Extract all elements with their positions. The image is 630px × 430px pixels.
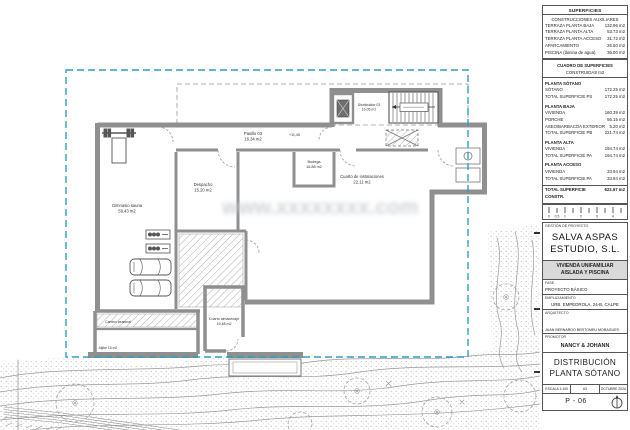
row-value: 5.20 m2 [609,124,625,131]
room-label-almacenaje: Cuarto almacenaje [209,317,239,321]
room-area-distribuidor: 16.05 m2 [362,108,377,112]
total-label: TOTAL SUPERFICIE CONSTR. [545,187,604,201]
built-table-title: CUADRO DE SUPERFICIES [543,60,627,69]
auxiliary-surfaces-table: SUPERFICIES CONSTRUCCIONES AUXILIARES TE… [542,5,628,59]
total-value: 622.67 m2 [604,187,625,201]
fase-box: FASE PROYECTO BÁSICO [542,280,628,295]
drawing-title-box: DISTRIBUCIÓN PLANTA SÓTANO [542,353,628,385]
staircase [389,92,438,123]
arquitecto-value: JUAN BERNARDO BERTOMEU MORAGUES [543,316,627,333]
drawing-title-line2: PLANTA SÓTANO [543,368,627,379]
room-area-gimnasio: 59.43 m2 [118,209,136,214]
management-box: GESTIÓN DE PROYECTO SALVA ASPAS ESTUDIO,… [542,222,628,261]
room-label-despacho: Despacho [194,182,214,187]
room-label-distribuidor: Distribuidor 03 [358,103,381,107]
row-value: 221.74 m2 [605,130,625,137]
row-label: ASEO/BARBACOA EXTERIOR [545,124,605,131]
table-row: VIVIENDA33.94 m2 [543,169,627,176]
fase-value: PROYECTO BÁSICO [543,286,627,294]
room-label-bodega: Bodega [307,160,321,164]
room-label-instalaciones: Cuarto de instalaciones [340,174,384,179]
table-row: VIVIENDA160.39 m2 [543,110,627,117]
bench-press [102,129,136,163]
scale-label: 4 [612,215,614,219]
row-value: 172.25 m2 [605,94,625,101]
row-label: TERRAZA PLANTA BAJA [545,23,594,30]
row-value: 172.25 m2 [605,87,625,94]
project-title-line1: VIVIENDA UNIFAMILIAR [543,263,627,270]
aux-table-title: SUPERFICIES [543,6,627,15]
section-planta-sotano: PLANTA SÓTANO SÓTANO172.25 m2 TOTAL SUPE… [543,81,627,101]
row-label: TERRAZA PLANTA ACCESO [545,36,601,43]
room-area-almacenaje: 19.48 m2 [217,322,232,326]
table-row: SÓTANO172.25 m2 [543,87,627,94]
studio-name-line1: SALVA ASPAS [543,232,627,244]
promotor-box: PROMOTOR NANCY & JOHANN [542,334,628,353]
section-planta-baja: PLANTA BAJA VIVIENDA160.39 m2 PORCHE56.1… [543,104,627,138]
row-label: TERRAZA PLANTA ALTA [545,29,593,36]
table-row: TOTAL SUPERFICIE PA194.74 m2 [543,153,627,160]
north-arrow-icon [609,394,625,410]
scale-label: 0 [548,215,550,219]
level-annotation: +11,45 [289,133,300,137]
car-2 [130,280,171,296]
row-label: VIVIENDA [545,146,565,153]
car-1 [130,259,171,275]
emplazamiento-value: URB. EMPEDROLA, 24-B, CALPE [543,301,627,309]
title-block-stack: GESTIÓN DE PROYECTO SALVA ASPAS ESTUDIO,… [542,222,628,411]
row-value: 56.15 m2 [607,117,625,124]
aux-table-subtitle: CONSTRUCCIONES AUXILIARES [543,15,627,23]
scale-label: 0,5 [555,215,560,219]
title-block-panel: SUPERFICIES CONSTRUCCIONES AUXILIARES TE… [542,5,628,411]
studio-name-line2: ESTUDIO, S.L. [543,244,627,256]
section-planta-alta: PLANTA ALTA VIVIENDA194.74 m2 TOTAL SUPE… [543,140,627,160]
sheet-number: P - 06 [543,398,609,405]
row-value: 194.74 m2 [605,146,625,153]
promotor-value: NANCY & JOHANN [543,340,627,352]
project-title-band: VIVIENDA UNIFAMILIAR AISLADA Y PISCINA [542,261,628,280]
table-row: TERRAZA PLANTA BAJA132.96 m2 [543,23,627,30]
row-label: SÓTANO [545,87,563,94]
built-table-subtitle: CONSTRUIDAS m2 [543,69,627,79]
row-label: VIVIENDA [545,169,565,176]
sheet-number-box: P - 06 [542,394,628,411]
row-value: 36.00 m2 [607,50,625,57]
room-label-aljibe: Aljibe 15 m2 [99,346,118,350]
floor-plan-drawing: Gimnasio sauna 59.43 m2 Despacho 15.20 m… [0,0,540,430]
gym-machines [146,230,170,253]
table-row: TOTAL SUPERFICIE PA33.94 m2 [543,176,627,183]
room-label-camino: Camino peatonal [105,320,131,324]
room-label-gimnasio: Gimnasio sauna [112,203,143,208]
meta-row: ESCALA 1:100 A3 OCTUBRE 2024 [542,385,628,394]
emplazamiento-box: EMPLAZAMIENTO URB. EMPEDROLA, 24-B, CALP… [542,295,628,310]
row-label: TOTAL SUPERFICIE PS [545,94,592,101]
elevator [333,94,353,123]
row-value: 33.94 m2 [607,176,625,183]
plan-sheet: Gimnasio sauna 59.43 m2 Despacho 15.20 m… [0,0,630,430]
total-row: TOTAL SUPERFICIE CONSTR. 622.67 m2 [543,185,627,203]
row-label: PISCINA (lámina de agua) [545,50,595,57]
void-crosshatch [386,130,418,146]
table-row: ASEO/BARBACOA EXTERIOR5.20 m2 [543,124,627,131]
section-planta-acceso: PLANTA ACCESO VIVIENDA33.94 m2 TOTAL SUP… [543,162,627,182]
ramp-hatch [179,234,243,307]
room-area-pasillo: 16.34 m2 [244,137,262,142]
table-row: TERRAZA PLANTA ALTA53.73 m2 [543,29,627,36]
scale-value: ESCALA 1:100 [543,385,571,393]
table-row: APARCAMIENTO26.50 m2 [543,43,627,50]
table-row: TERRAZA PLANTA ACCESO31.72 m2 [543,36,627,43]
room-area-instalaciones: 22.11 m2 [353,180,371,185]
row-label: VIVIENDA [545,110,565,117]
row-value: 33.94 m2 [607,169,625,176]
row-value: 160.39 m2 [605,110,625,117]
row-value: 31.72 m2 [607,36,625,43]
row-value: 194.74 m2 [605,153,625,160]
row-label: APARCAMIENTO [545,43,579,50]
graphic-scale-bar: 0 0,5 1 2 3 4 [542,204,628,220]
terrain [0,224,540,430]
scale-label: 2 [580,215,582,219]
table-row: PORCHE56.15 m2 [543,117,627,124]
scale-label: 3 [596,215,598,219]
row-label: TOTAL SUPERFICIE PA [545,153,592,160]
table-row: TOTAL SUPERFICIE PS172.25 m2 [543,94,627,101]
entrance-steps [229,359,301,376]
drawing-title-line1: DISTRIBUCIÓN [543,357,627,368]
room-label-pasillo: Pasillo 03 [244,131,263,136]
room-area-bodega: 16.88 m2 [306,165,322,169]
scale-label: 1 [564,215,566,219]
row-label: TOTAL SUPERFICIE PA [545,176,592,183]
project-title-line2: AISLADA Y PISCINA [543,270,627,277]
row-label: PORCHE [545,117,563,124]
date-value: OCTUBRE 2024 [600,385,627,393]
row-label: TOTAL SUPERFICIE PB [545,130,592,137]
table-row: PISCINA (lámina de agua)36.00 m2 [543,50,627,59]
row-value: 53.73 m2 [607,29,625,36]
row-value: 26.50 m2 [607,43,625,50]
arquitecto-box: ARQUITECTO JUAN BERNARDO BERTOMEU MORAGU… [542,310,628,334]
row-value: 132.96 m2 [605,23,625,30]
studio-name: SALVA ASPAS ESTUDIO, S.L. [543,229,627,260]
built-surfaces-table: CUADRO DE SUPERFICIES CONSTRUIDAS m2 PLA… [542,59,628,204]
hatched-areas [97,130,418,327]
room-area-despacho: 15.20 m2 [194,188,212,193]
paper-size: A3 [571,385,599,393]
table-row: TOTAL SUPERFICIE PB221.74 m2 [543,130,627,137]
table-row: VIVIENDA194.74 m2 [543,146,627,153]
